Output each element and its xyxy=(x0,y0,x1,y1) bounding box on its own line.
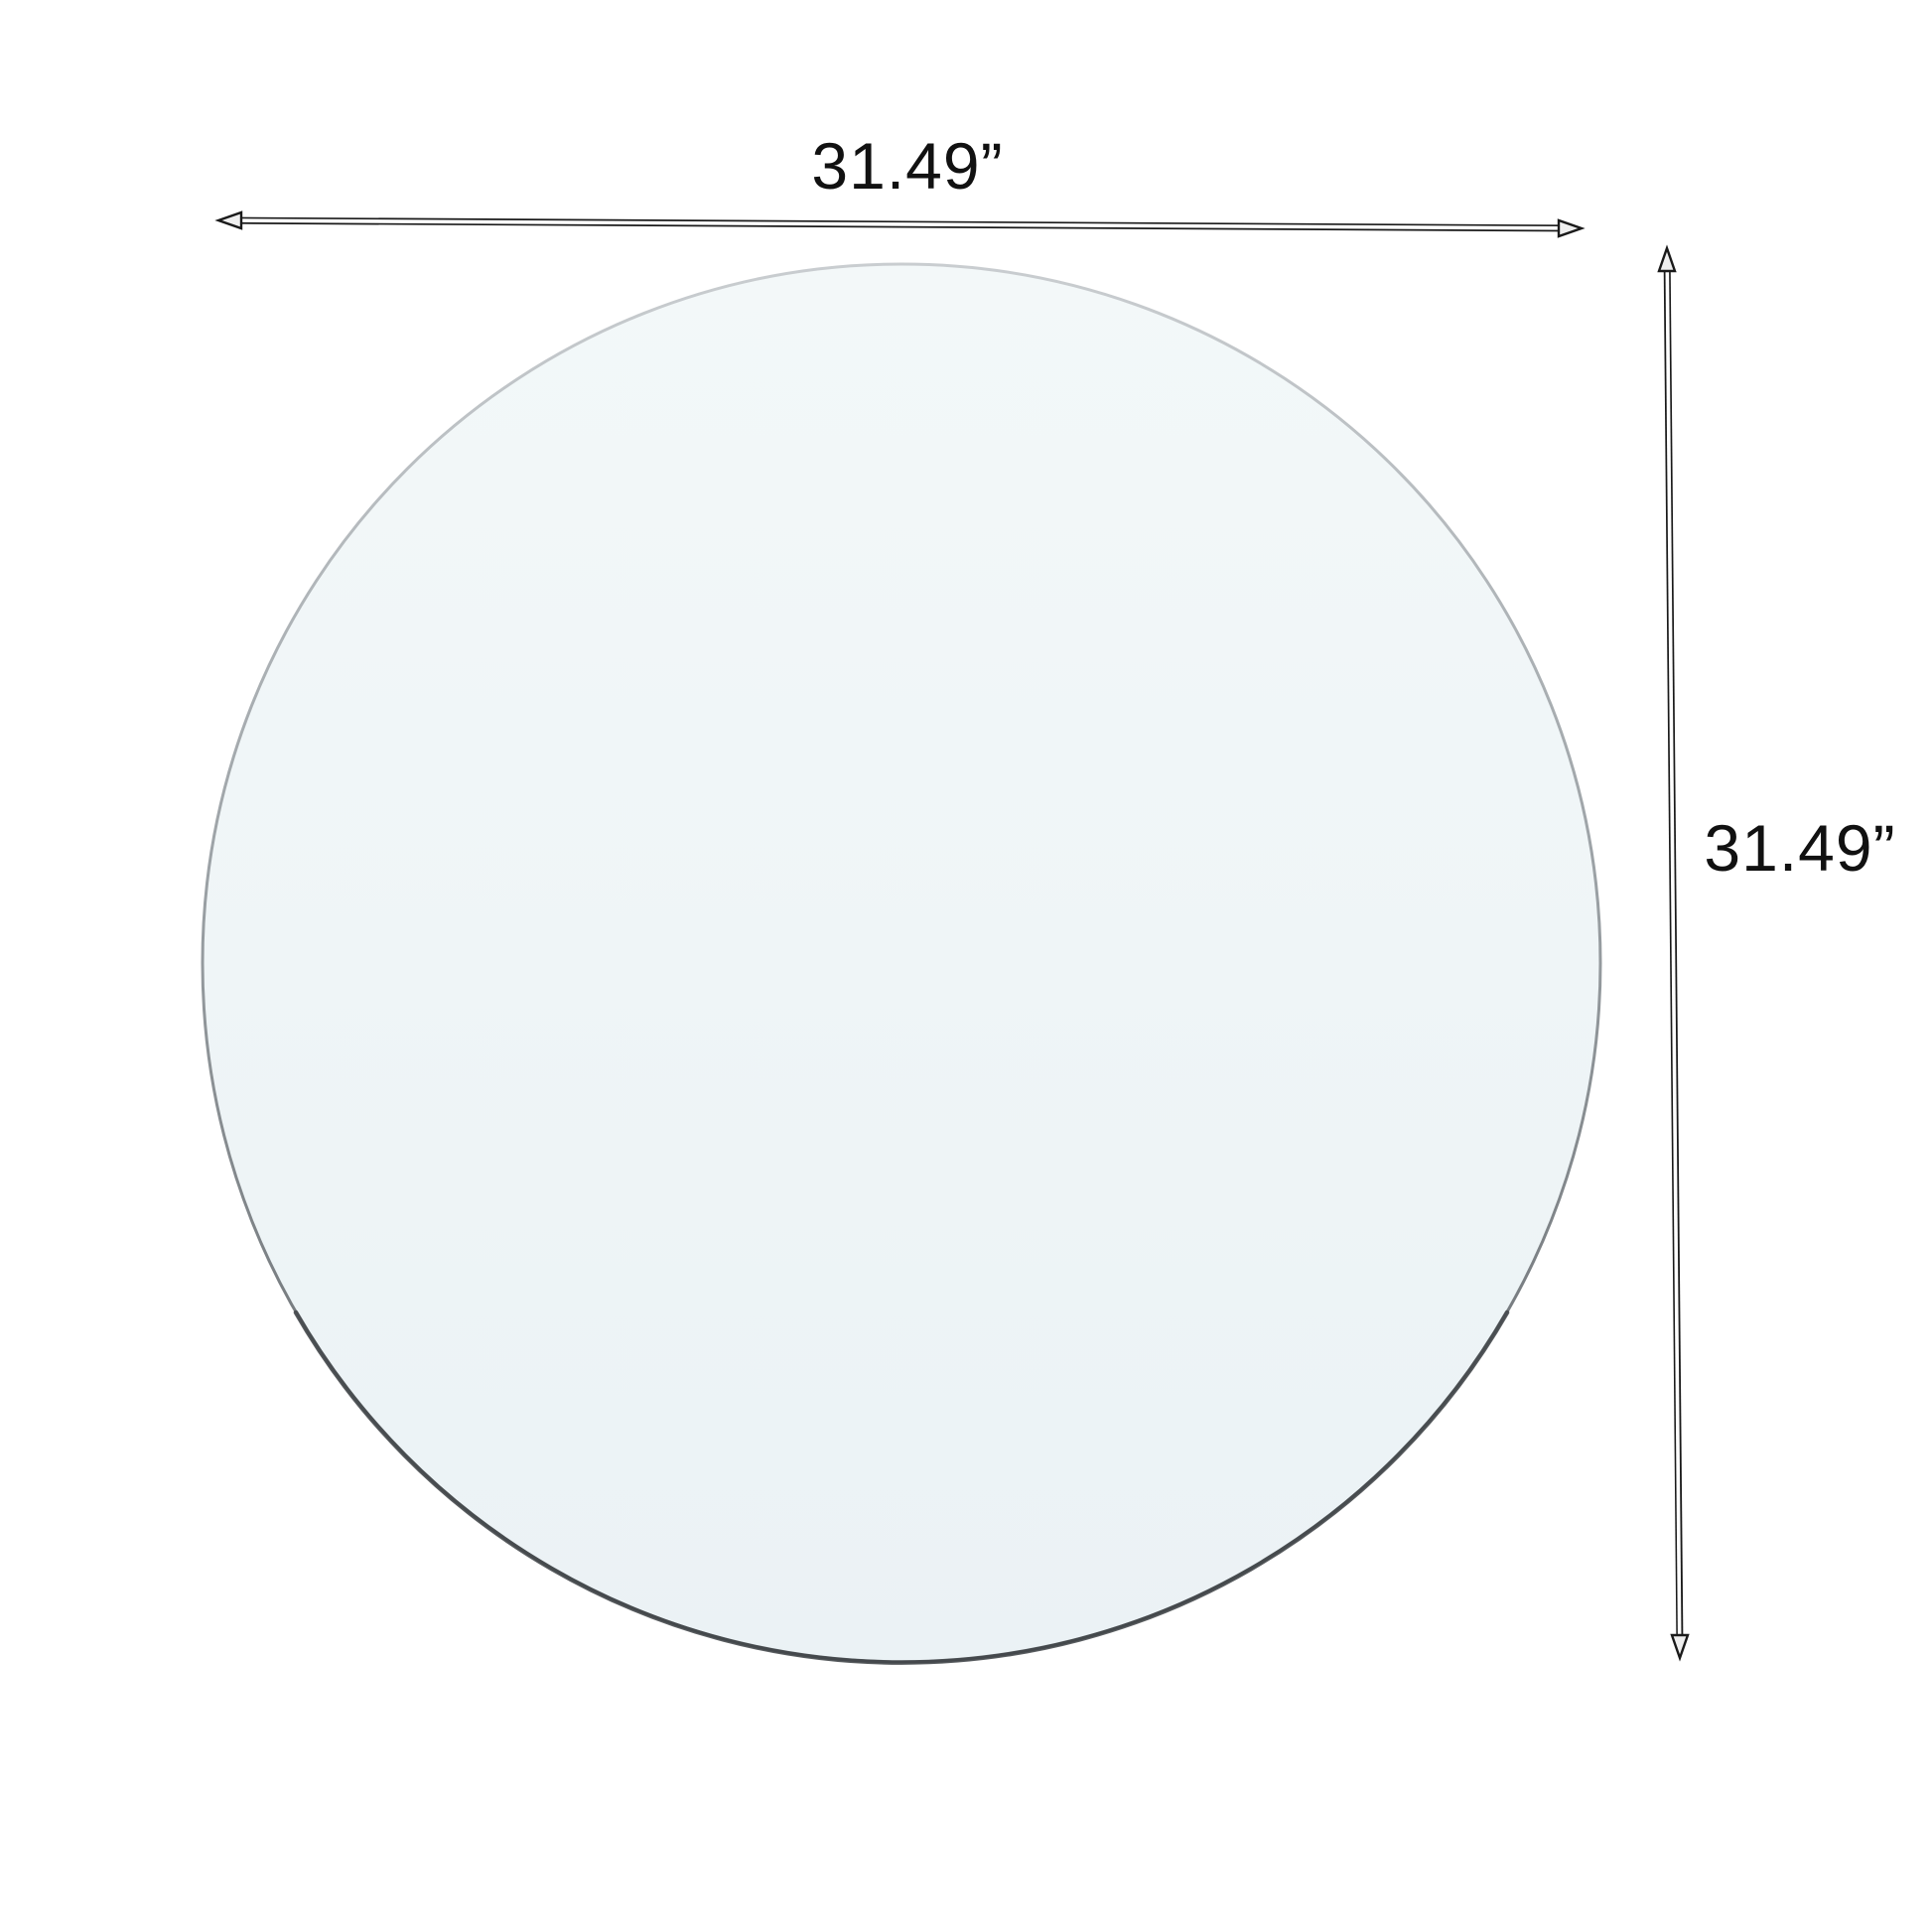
height-dimension-arrow xyxy=(1659,248,1688,1658)
arrowhead-down-icon xyxy=(1672,1635,1688,1658)
arrowhead-left-icon xyxy=(218,212,241,228)
glass-tabletop-circle xyxy=(203,264,1600,1662)
dimension-diagram: 31.49” 31.49” xyxy=(0,0,1932,1932)
height-shaft-inner xyxy=(1667,270,1679,1636)
arrowhead-up-icon xyxy=(1659,248,1675,271)
width-dimension-label: 31.49” xyxy=(811,129,1003,203)
width-dimension-arrow xyxy=(218,212,1582,236)
arrowhead-right-icon xyxy=(1559,220,1582,236)
height-dimension-label: 31.49” xyxy=(1704,811,1895,885)
dimension-diagram-canvas: 31.49” 31.49” xyxy=(0,0,1932,1932)
